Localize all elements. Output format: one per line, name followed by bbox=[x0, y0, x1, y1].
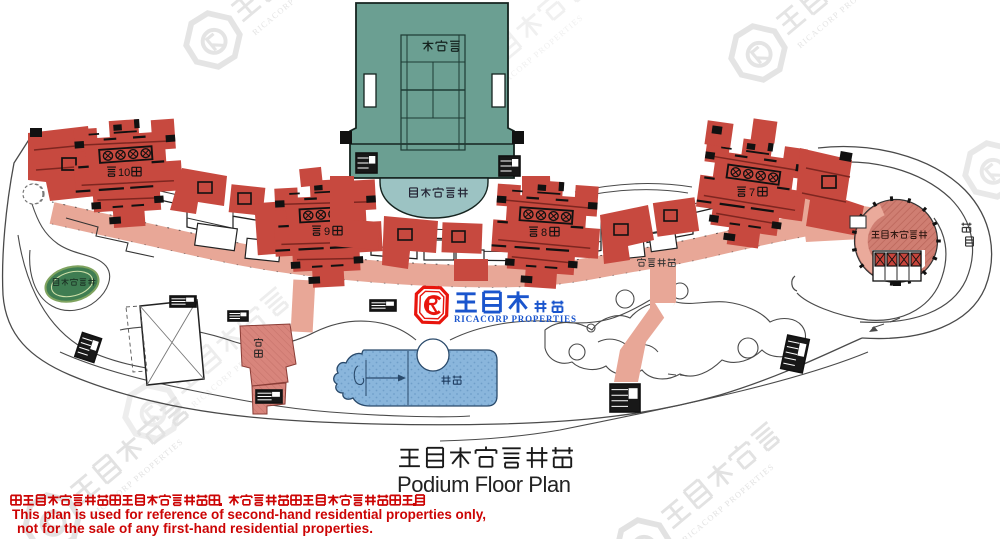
svg-text:9: 9 bbox=[324, 226, 330, 238]
svg-text:10: 10 bbox=[118, 167, 130, 179]
svg-text:RICACORP PROPERTIES: RICACORP PROPERTIES bbox=[454, 314, 576, 324]
svg-text:8: 8 bbox=[541, 227, 547, 239]
svg-text:This plan is used for referenc: This plan is used for reference of secon… bbox=[12, 507, 486, 522]
svg-text:not for the sale of any first-: not for the sale of any first-hand resid… bbox=[17, 521, 373, 536]
svg-text:7: 7 bbox=[749, 187, 755, 199]
svg-text:Podium Floor Plan: Podium Floor Plan bbox=[397, 472, 571, 497]
